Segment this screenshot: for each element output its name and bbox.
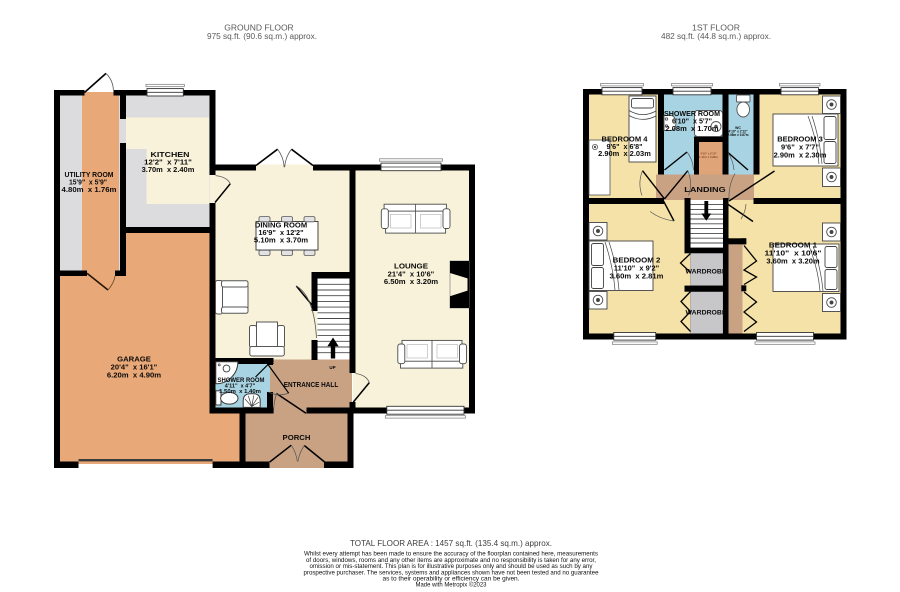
- svg-text:12'2" x 7'11": 12'2" x 7'11": [144, 160, 192, 167]
- svg-text:482 sq.ft. (44.8 sq.m.) approx: 482 sq.ft. (44.8 sq.m.) approx.: [661, 32, 771, 41]
- svg-text:WARDROBE: WARDROBE: [686, 310, 727, 317]
- svg-text:5.10m x 3.70m: 5.10m x 3.70m: [254, 236, 308, 245]
- svg-text:1.47m x 0.86m: 1.47m x 0.86m: [699, 155, 718, 159]
- svg-text:4.80m x 1.76m: 4.80m x 1.76m: [62, 187, 117, 194]
- svg-text:LANDING: LANDING: [684, 185, 726, 194]
- svg-text:2.90m x 2.30m: 2.90m x 2.30m: [774, 151, 827, 160]
- svg-text:ENTRANCE HALL: ENTRANCE HALL: [284, 380, 339, 389]
- svg-text:2.90m x 2.03m: 2.90m x 2.03m: [598, 151, 651, 158]
- svg-text:BEDROOM 4: BEDROOM 4: [602, 137, 648, 144]
- svg-text:6.20m x 4.90m: 6.20m x 4.90m: [107, 371, 162, 380]
- svg-text:UTILITY ROOM: UTILITY ROOM: [65, 172, 114, 179]
- svg-text:6.50m x 3.20m: 6.50m x 3.20m: [384, 277, 439, 286]
- svg-text:3.70m x 2.40m: 3.70m x 2.40m: [142, 167, 195, 174]
- svg-text:975 sq.ft. (90.6 sq.m.) approx: 975 sq.ft. (90.6 sq.m.) approx.: [207, 32, 317, 41]
- svg-text:15'9" x 5'9": 15'9" x 5'9": [69, 180, 107, 187]
- svg-text:1.50m x 1.40m: 1.50m x 1.40m: [219, 389, 261, 395]
- svg-text:2.08m x 0.87m: 2.08m x 0.87m: [728, 133, 749, 137]
- svg-text:3.60m x 2.81m: 3.60m x 2.81m: [610, 272, 664, 281]
- svg-text:TOTAL FLOOR AREA : 1457 sq.ft.: TOTAL FLOOR AREA : 1457 sq.ft. (135.4 sq…: [350, 538, 552, 548]
- svg-text:KITCHEN: KITCHEN: [151, 152, 190, 159]
- svg-text:WARDROBE: WARDROBE: [686, 269, 727, 276]
- svg-text:UP: UP: [329, 365, 335, 370]
- svg-text:3.60m x 3.20m: 3.60m x 3.20m: [766, 257, 820, 266]
- svg-text:PORCH: PORCH: [283, 433, 311, 442]
- svg-text:9'6" x 6'8": 9'6" x 6'8": [607, 144, 643, 151]
- svg-text:Made with Metropix ©2023: Made with Metropix ©2023: [416, 582, 488, 589]
- svg-text:2.08m x 1.70m: 2.08m x 1.70m: [666, 124, 719, 133]
